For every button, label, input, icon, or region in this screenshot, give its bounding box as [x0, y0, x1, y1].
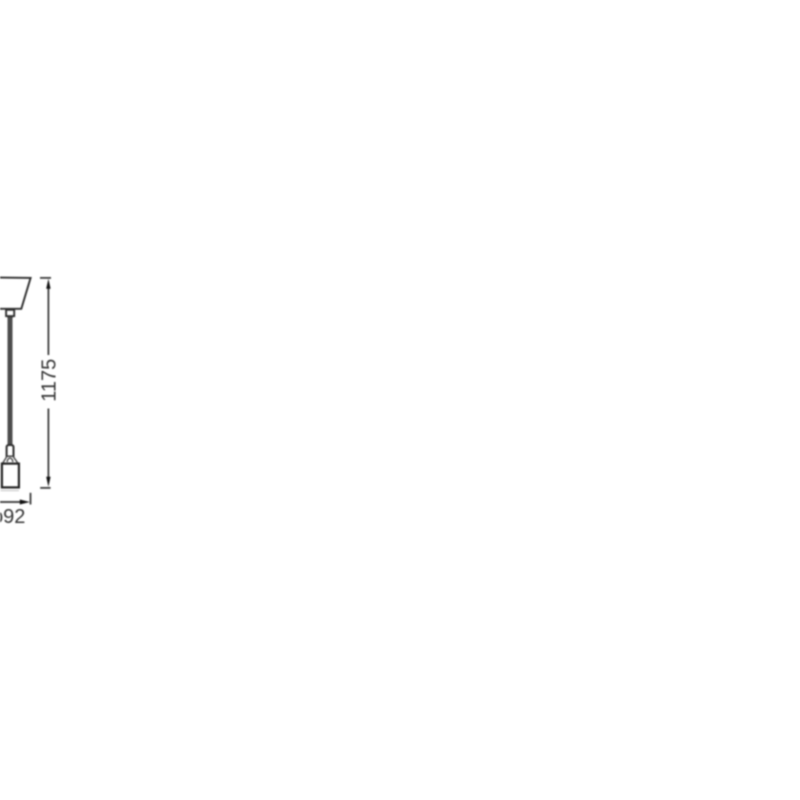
svg-text:1175: 1175	[39, 359, 61, 402]
svg-text:φ92: φ92	[0, 506, 25, 528]
